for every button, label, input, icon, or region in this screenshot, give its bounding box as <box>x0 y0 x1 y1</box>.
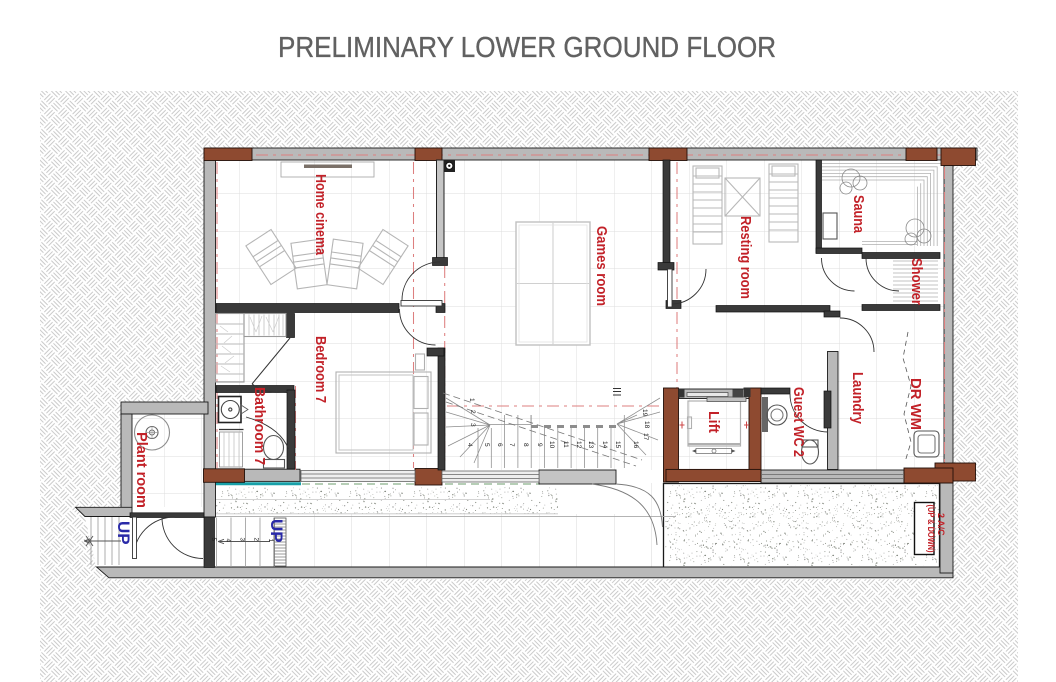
svg-text:18: 18 <box>643 421 650 429</box>
svg-text:(UP & DOWN): (UP & DOWN) <box>925 505 936 553</box>
svg-text:3: 3 <box>239 538 246 542</box>
svg-text:DR WM: DR WM <box>907 378 924 430</box>
svg-text:17: 17 <box>642 433 649 441</box>
svg-text:13: 13 <box>587 441 594 449</box>
svg-text:Home cinema: Home cinema <box>312 174 329 256</box>
svg-text:7: 7 <box>508 443 515 447</box>
svg-text:6: 6 <box>496 443 503 447</box>
svg-text:16: 16 <box>632 441 639 449</box>
svg-text:1: 1 <box>267 539 274 543</box>
svg-text:9: 9 <box>536 443 543 447</box>
svg-text:Guest WC 2: Guest WC 2 <box>790 387 807 457</box>
svg-text:Sauna: Sauna <box>850 195 867 234</box>
svg-text:3: 3 <box>469 423 476 427</box>
svg-text:PRELIMINARY LOWER GROUND FLOOR: PRELIMINARY LOWER GROUND FLOOR <box>278 32 776 64</box>
svg-text:Games room: Games room <box>593 226 610 306</box>
svg-text:5: 5 <box>483 443 490 447</box>
svg-text:Plant room: Plant room <box>133 432 150 508</box>
svg-text:10: 10 <box>548 441 555 449</box>
svg-text:Shower: Shower <box>908 258 925 305</box>
svg-text:4: 4 <box>466 443 473 447</box>
svg-text:Laundry: Laundry <box>849 372 866 425</box>
svg-text:4: 4 <box>225 539 232 543</box>
svg-text:2: 2 <box>469 410 476 414</box>
svg-text:UP: UP <box>114 521 133 545</box>
svg-text:Resting room: Resting room <box>737 216 754 299</box>
svg-text:5: 5 <box>210 538 217 542</box>
svg-text:2 A/C: 2 A/C <box>936 513 946 536</box>
svg-text:2: 2 <box>253 538 260 542</box>
svg-text:14: 14 <box>601 441 608 449</box>
svg-text:Bedroom 7: Bedroom 7 <box>312 336 329 403</box>
svg-text:8: 8 <box>522 443 529 447</box>
svg-text:Lift: Lift <box>705 411 722 433</box>
svg-text:1: 1 <box>468 398 475 402</box>
svg-text:12: 12 <box>575 441 582 449</box>
svg-text:19: 19 <box>641 409 648 417</box>
svg-text:11: 11 <box>562 441 569 448</box>
svg-text:Bathroom 7: Bathroom 7 <box>251 387 268 465</box>
svg-text:15: 15 <box>614 441 621 449</box>
